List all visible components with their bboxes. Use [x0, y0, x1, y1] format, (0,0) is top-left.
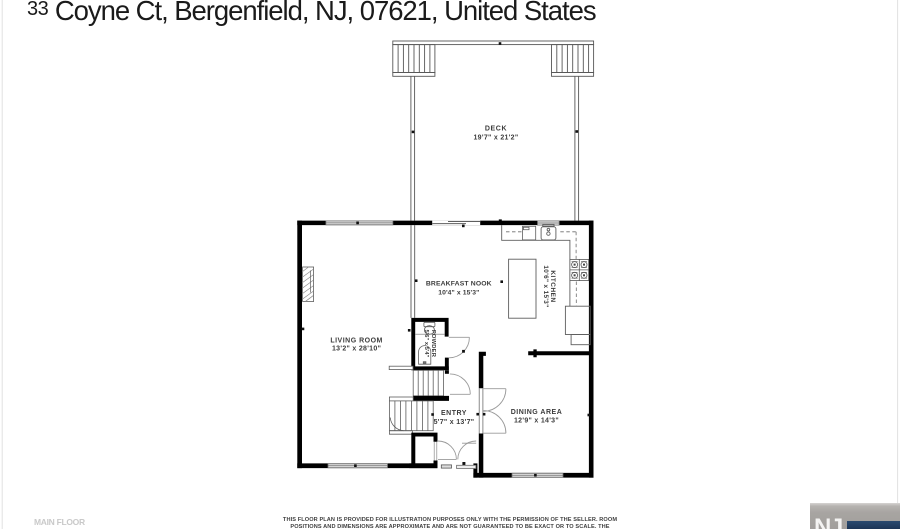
- svg-text:BREAKFAST NOOK: BREAKFAST NOOK: [426, 281, 492, 288]
- svg-text:ENTRY: ENTRY: [441, 410, 467, 417]
- svg-text:KITCHEN: KITCHEN: [549, 270, 556, 302]
- svg-text:10'4" x 15'3": 10'4" x 15'3": [438, 289, 479, 296]
- svg-text:DINING AREA: DINING AREA: [511, 409, 563, 416]
- svg-text:DECK: DECK: [485, 126, 507, 133]
- svg-text:5'7" x 13'7": 5'7" x 13'7": [434, 419, 475, 426]
- svg-text:10'6" x 15'3": 10'6" x 15'3": [542, 265, 549, 307]
- svg-text:19'7" x 21'2": 19'7" x 21'2": [473, 135, 518, 142]
- svg-text:5'6" x 5'4": 5'6" x 5'4": [423, 330, 429, 358]
- svg-text:LIVING ROOM: LIVING ROOM: [330, 338, 383, 345]
- svg-text:13'2" x 28'10": 13'2" x 28'10": [332, 346, 381, 353]
- svg-text:POWDER: POWDER: [430, 330, 436, 358]
- svg-text:12'9" x 14'3": 12'9" x 14'3": [514, 417, 559, 424]
